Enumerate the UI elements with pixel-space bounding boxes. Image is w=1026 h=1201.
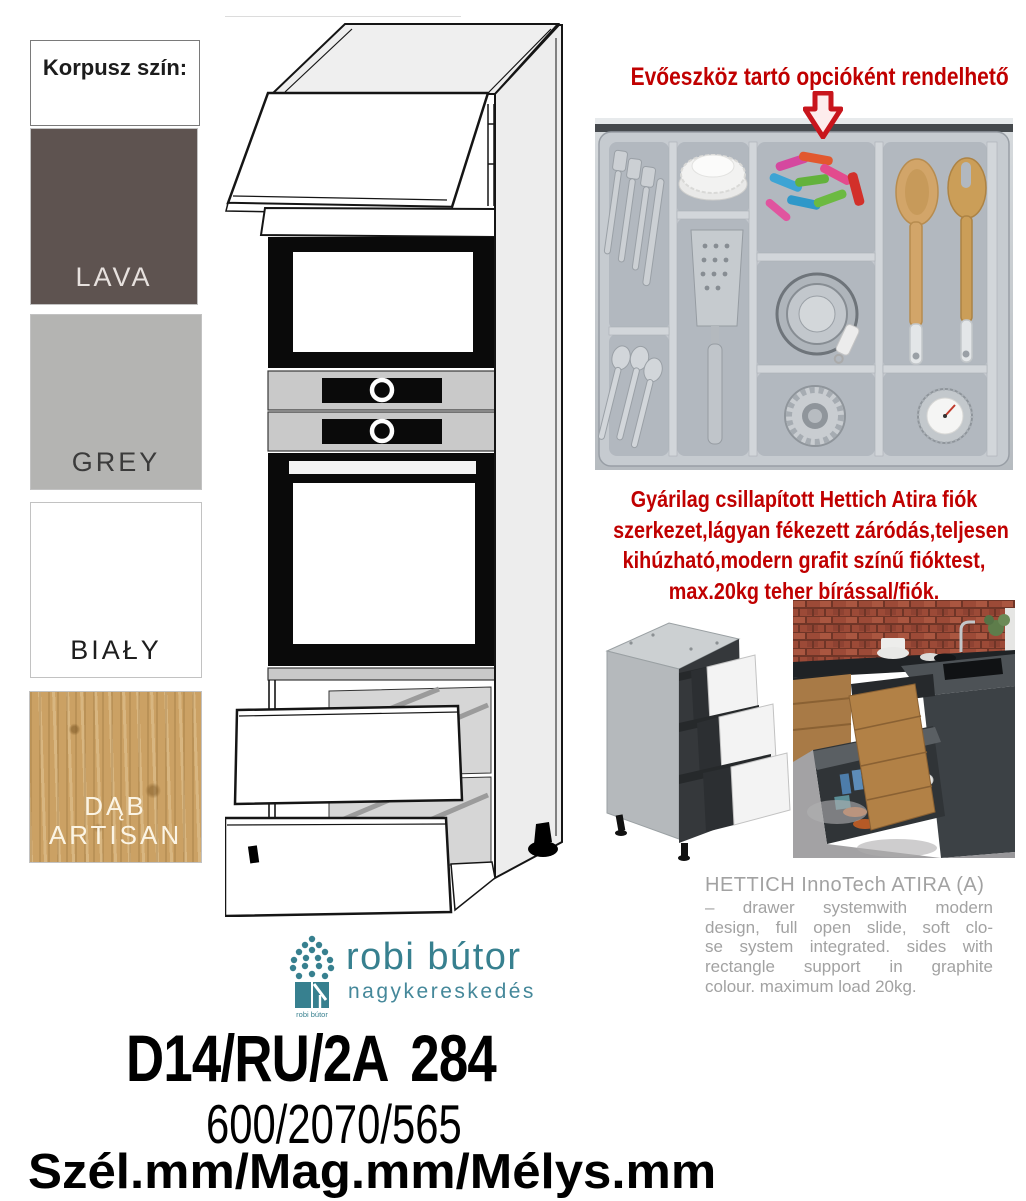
note-line: – drawer systemwith modern: [705, 898, 993, 918]
swatch-label: LAVA: [31, 262, 197, 304]
tart-pan: [785, 386, 845, 446]
note-line: design, full open slide, soft clo-: [705, 918, 993, 938]
swatch-dab-artisan: DĄB ARTISAN: [29, 691, 202, 863]
note-line: kihúzható,modern grafit színű fióktest,: [613, 545, 995, 576]
hettich-note-title: HETTICH InnoTech ATIRA (A): [705, 876, 993, 896]
product-sheet: Korpusz szín: LAVA GREY BIAŁY DĄB ARTISA…: [0, 0, 1026, 1201]
note-line: rectangle support in graphite: [705, 957, 993, 977]
korpus-color-title: Korpusz szín:: [30, 40, 200, 126]
note-line: szerkezet,lágyan fékezett záródás,teljes…: [613, 515, 995, 546]
cutlery-tray-photo: [595, 118, 1013, 480]
drawer-system-render: [591, 607, 791, 863]
tall-oven-cabinet-drawing: [225, 12, 570, 917]
swatch-label: DĄB ARTISAN: [30, 792, 201, 862]
product-code: D14/RU/2A 284: [126, 1020, 496, 1096]
logo-brand-text: robi bútor: [346, 936, 522, 979]
note-line: se system integrated. sides with: [705, 937, 993, 957]
swatch-bialy: BIAŁY: [30, 502, 202, 678]
drawer-note-red: Gyárilag csillapított Hettich Atira fiók…: [613, 484, 995, 606]
logo-subtitle-text: nagykereskedés: [348, 980, 536, 1004]
swatch-grey: GREY: [30, 314, 202, 490]
cutlery-option-headline: Evőeszköz tartó opcióként rendelhető: [631, 63, 984, 92]
kitchen-timer: [918, 389, 972, 443]
swatch-label: BIAŁY: [31, 635, 201, 677]
dimension-labels: Szél.mm/Mag.mm/Mélys.mm: [28, 1144, 716, 1200]
swatch-lava: LAVA: [30, 128, 198, 305]
kitchen-photo: [793, 600, 1015, 858]
tree-logo-icon: robi bútor: [283, 933, 341, 1019]
swatch-label: GREY: [31, 447, 201, 489]
hettich-note: HETTICH InnoTech ATIRA (A) – drawer syst…: [705, 876, 993, 997]
note-line: Gyárilag csillapított Hettich Atira fiók: [613, 484, 995, 515]
cupcake-liners: [679, 155, 747, 200]
down-arrow-icon: [803, 91, 843, 139]
note-line: colour. maximum load 20kg.: [705, 977, 993, 997]
svg-text:robi bútor: robi bútor: [296, 1010, 328, 1019]
